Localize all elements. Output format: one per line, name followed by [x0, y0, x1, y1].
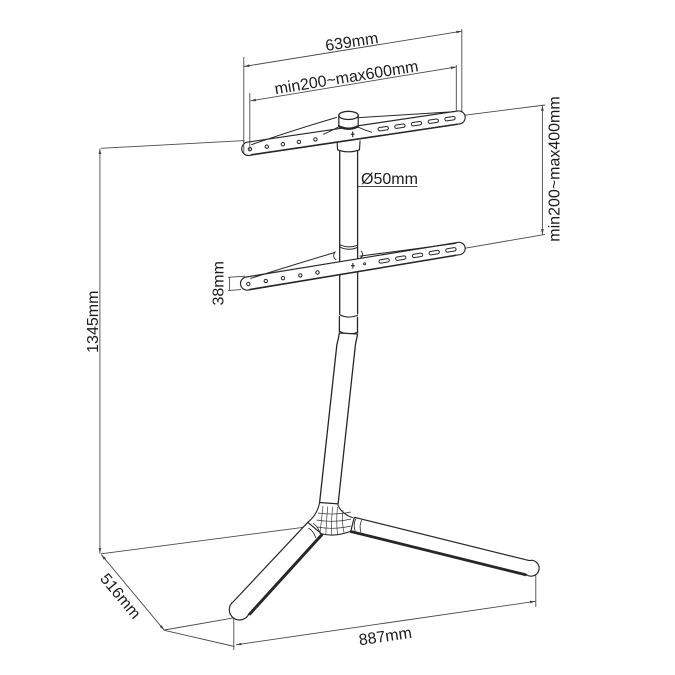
svg-text:Ø50mm: Ø50mm [361, 171, 418, 188]
svg-text:1345mm: 1345mm [85, 291, 102, 353]
svg-text:min200~max400mm: min200~max400mm [547, 96, 564, 241]
svg-text:38mm: 38mm [211, 261, 228, 305]
